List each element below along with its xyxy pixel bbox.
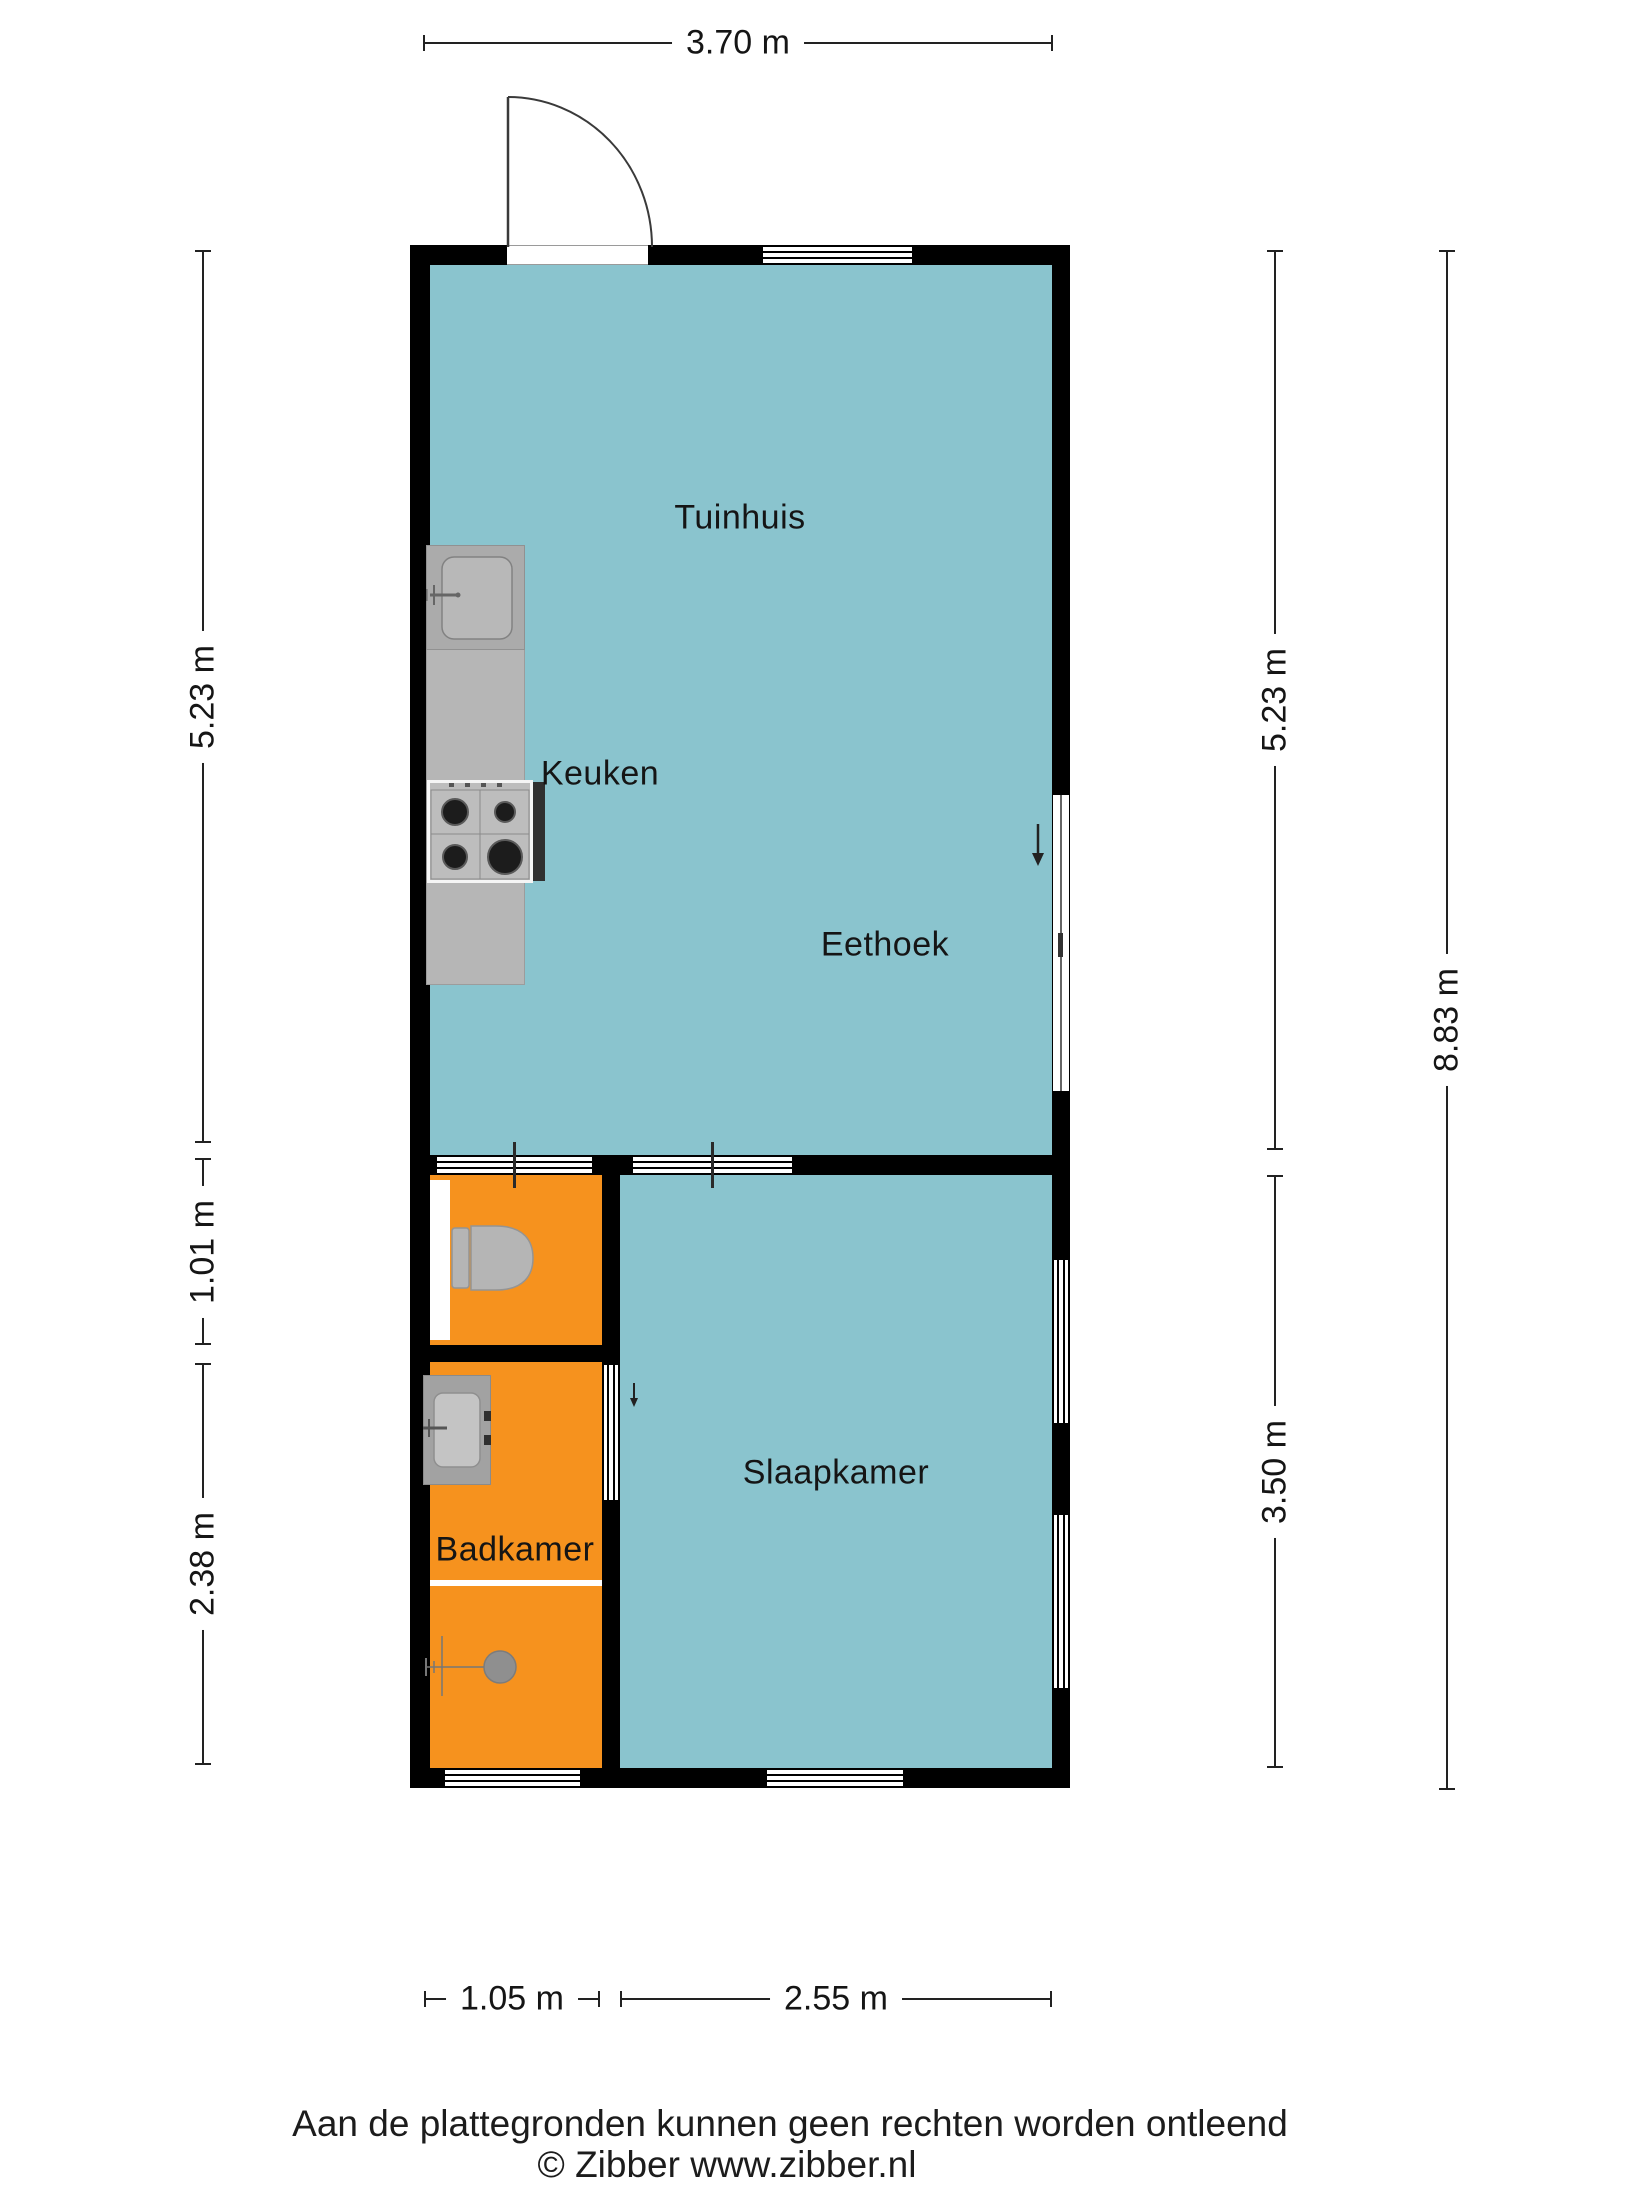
- footer-credit: © Zibber www.zibber.nl: [538, 2144, 917, 2186]
- room-label-keuken: Keuken: [541, 755, 659, 794]
- dim-tick: [1050, 1991, 1052, 2007]
- entry-door-swing-icon: [505, 93, 655, 249]
- dim-bottom-slaapkamer: 2.55 m: [620, 1991, 1052, 2007]
- dim-label: 5.23 m: [184, 631, 223, 763]
- room-label-eethoek: Eethoek: [821, 926, 949, 965]
- dim-label: 1.01 m: [184, 1186, 223, 1318]
- toilet-icon: [450, 1222, 535, 1294]
- dim-top-width: 3.70 m: [423, 35, 1053, 51]
- dim-tick: [1267, 1148, 1283, 1150]
- shower-icon: [424, 1630, 534, 1704]
- door-badkamer-slaapkamer: [602, 1365, 620, 1500]
- window-badkamer-bottom: [445, 1768, 580, 1788]
- dim-label: 2.55 m: [770, 1980, 902, 2019]
- wall-toilet-badkamer: [410, 1345, 620, 1362]
- dim-tick: [598, 1991, 600, 2007]
- dim-tick: [195, 1343, 211, 1345]
- dim-left-upper: 5.23 m: [195, 250, 211, 1143]
- door-leaf-slaapkamer: [711, 1142, 714, 1188]
- window-top: [763, 245, 912, 265]
- dim-tick: [424, 1991, 426, 2007]
- bathroom-sink-icon: [423, 1375, 491, 1485]
- dim-label: 3.50 m: [1256, 1406, 1295, 1538]
- dim-tick: [195, 1141, 211, 1143]
- shower-divider: [430, 1580, 602, 1586]
- sliding-door-handle: [1058, 933, 1063, 957]
- window-slaapkamer-bottom: [767, 1768, 903, 1788]
- room-label-tuinhuis: Tuinhuis: [674, 499, 805, 538]
- dim-right-upper: 5.23 m: [1267, 250, 1283, 1150]
- dim-label: 8.83 m: [1428, 954, 1467, 1086]
- door-swing-arrow-icon: [627, 1382, 641, 1408]
- stove-icon: [427, 780, 533, 883]
- dim-tick: [1051, 35, 1053, 51]
- dim-tick: [1267, 1766, 1283, 1768]
- dim-label: 5.23 m: [1256, 634, 1295, 766]
- dim-right-total: 8.83 m: [1439, 250, 1455, 1790]
- oven-handle: [533, 782, 545, 881]
- dim-tick: [195, 1763, 211, 1765]
- dim-tick: [1267, 1175, 1283, 1177]
- window-slaapkamer-right-2: [1052, 1515, 1070, 1688]
- toilet-niche: [430, 1180, 450, 1340]
- dim-tick: [1439, 250, 1455, 252]
- dim-bottom-badkamer: 1.05 m: [424, 1991, 600, 2007]
- dim-tick: [195, 1158, 211, 1160]
- dim-left-lower: 2.38 m: [195, 1363, 211, 1765]
- window-slaapkamer-right-1: [1052, 1260, 1070, 1423]
- floorplan-canvas: Tuinhuis Keuken Eethoek Badkamer Slaapka…: [0, 0, 1650, 2200]
- room-label-slaapkamer: Slaapkamer: [743, 1454, 929, 1493]
- dim-right-lower: 3.50 m: [1267, 1175, 1283, 1768]
- dim-label: 1.05 m: [446, 1980, 578, 2019]
- dim-tick: [195, 250, 211, 252]
- dim-tick: [620, 1991, 622, 2007]
- dim-label: 3.70 m: [672, 24, 804, 63]
- dim-tick: [1439, 1788, 1455, 1790]
- door-leaf-toilet: [513, 1142, 516, 1188]
- footer-disclaimer: Aan de plattegronden kunnen geen rechten…: [292, 2103, 1288, 2145]
- kitchen-sink-icon: [426, 545, 525, 650]
- dim-left-middle: 1.01 m: [195, 1158, 211, 1345]
- dim-tick: [1267, 250, 1283, 252]
- dim-label: 2.38 m: [184, 1498, 223, 1630]
- entry-arrow-icon: [1028, 822, 1048, 868]
- room-label-badkamer: Badkamer: [436, 1531, 595, 1570]
- dim-tick: [195, 1363, 211, 1365]
- dim-tick: [423, 35, 425, 51]
